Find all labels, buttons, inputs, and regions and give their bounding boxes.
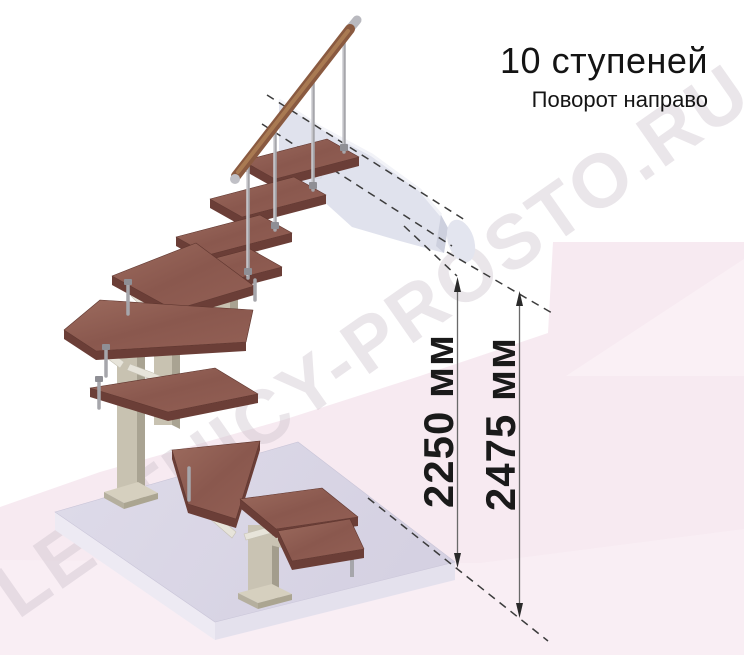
page-subtitle: Поворот направо <box>500 87 708 113</box>
dimension-label-2250: 2250 мм <box>415 334 462 508</box>
dimension-label-2475: 2475 мм <box>477 337 524 511</box>
staircase-diagram: LESTNICY-PROSTO.RU <box>0 0 744 655</box>
handrail-lower-cap <box>230 174 240 184</box>
arrow-up-icon <box>516 291 523 306</box>
tread-5 <box>64 300 253 360</box>
title-block: 10 ступеней Поворот направо <box>500 42 708 113</box>
page-title: 10 ступеней <box>500 42 708 80</box>
